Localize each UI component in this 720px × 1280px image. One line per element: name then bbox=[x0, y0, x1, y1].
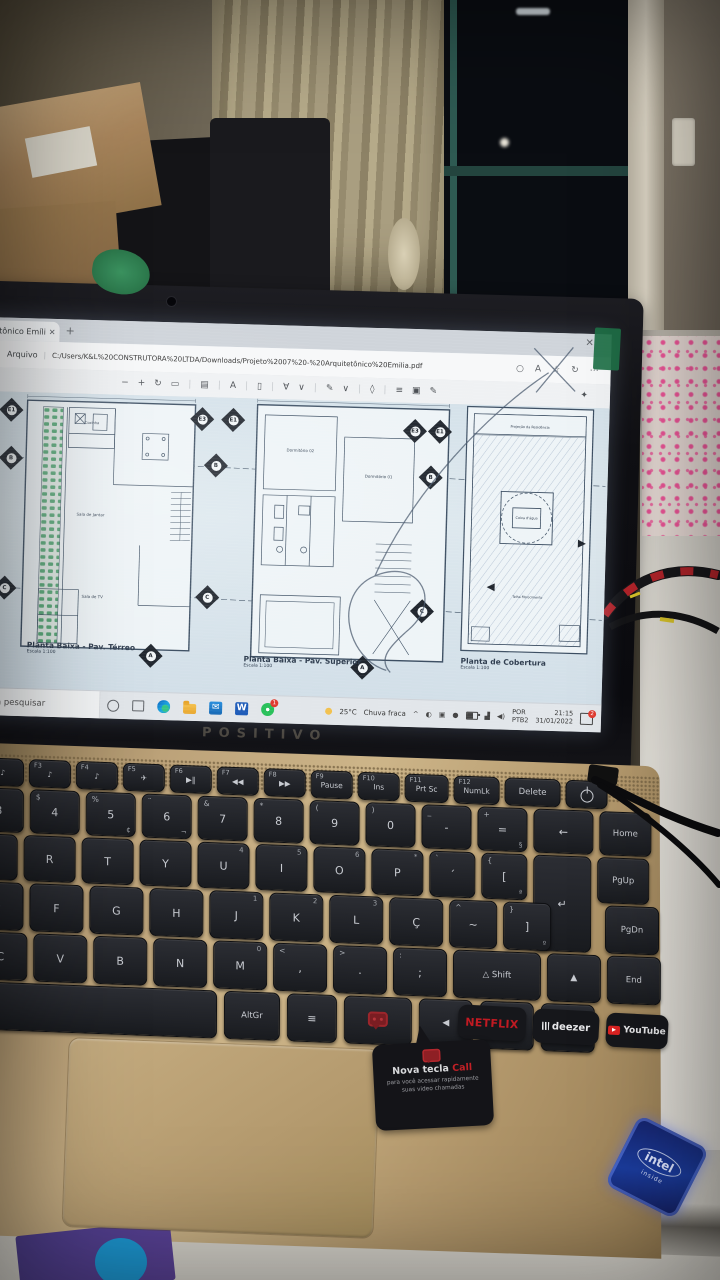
erase-icon[interactable]: ◊ bbox=[370, 385, 375, 395]
clock[interactable]: 21:1531/01/2022 bbox=[535, 710, 573, 726]
weather-temp[interactable]: 25°C bbox=[339, 708, 357, 716]
usb-cable bbox=[540, 755, 720, 895]
window-reflection bbox=[516, 8, 550, 15]
svg-text:Caixa d'água: Caixa d'água bbox=[515, 516, 537, 521]
whatsapp-icon[interactable]: 1 bbox=[261, 703, 274, 716]
taskbar-search-box[interactable]: ara pesquisar bbox=[0, 687, 101, 718]
task-view-icon[interactable] bbox=[132, 700, 144, 711]
door-frame-rail bbox=[450, 0, 457, 316]
zoom-icon[interactable]: ○ bbox=[516, 363, 524, 373]
draw-caret-icon[interactable]: ∨ bbox=[298, 383, 305, 393]
svg-text:Cozinha: Cozinha bbox=[85, 421, 99, 425]
zoom-in-icon[interactable]: + bbox=[138, 378, 146, 388]
window-close-button[interactable]: ✕ bbox=[585, 338, 594, 349]
search-text: ara pesquisar bbox=[0, 697, 45, 709]
pink-pattern-fabric bbox=[642, 336, 720, 536]
volume-icon[interactable]: ◀) bbox=[497, 712, 505, 720]
axis-marker-c: C bbox=[200, 590, 215, 605]
axis-marker-b: B bbox=[3, 450, 18, 465]
page-view-icon[interactable]: ▤ bbox=[200, 380, 209, 390]
divider: | bbox=[358, 384, 361, 394]
tab-title: tetônico Emíli bbox=[0, 325, 46, 337]
cortana-icon[interactable] bbox=[107, 699, 119, 711]
divider: | bbox=[245, 381, 248, 391]
action-center-icon[interactable]: 2 bbox=[580, 712, 593, 724]
network-icon[interactable]: ▟ bbox=[484, 712, 490, 720]
word-icon[interactable]: W bbox=[235, 702, 248, 715]
pin-toolbar-icon[interactable]: ✦ bbox=[580, 391, 588, 401]
svg-text:Telha Fibrocimento: Telha Fibrocimento bbox=[511, 595, 542, 600]
fit-page-icon[interactable]: ▭ bbox=[171, 379, 180, 389]
lanyard-strap bbox=[600, 535, 720, 635]
tab-close-icon[interactable]: ✕ bbox=[49, 327, 56, 336]
read-aloud-icon[interactable]: A bbox=[230, 381, 236, 391]
axis-marker-b: B bbox=[208, 458, 223, 473]
divider: | bbox=[271, 382, 274, 392]
save-as-icon[interactable]: ✎ bbox=[429, 386, 437, 396]
webcam bbox=[166, 296, 177, 307]
svg-text:Sala de Jantar: Sala de Jantar bbox=[76, 512, 104, 518]
folder-blue-circle bbox=[95, 1238, 147, 1280]
axis-marker-c: C bbox=[414, 604, 429, 619]
mail-icon[interactable]: ✉ bbox=[209, 701, 222, 714]
favorites-icon[interactable]: ☆ bbox=[552, 364, 560, 374]
new-tab-button[interactable]: + bbox=[65, 324, 75, 337]
zoom-out-icon[interactable]: − bbox=[121, 378, 129, 388]
pdf-page[interactable]: Sala de Jantar Sala de TV Cozinha Dormit… bbox=[0, 390, 610, 705]
door-frame-rail bbox=[444, 166, 632, 176]
divider: | bbox=[383, 385, 386, 395]
window-reflection bbox=[500, 138, 509, 147]
axis-marker-e1: E1 bbox=[226, 412, 241, 427]
rotate-icon[interactable]: ↻ bbox=[154, 379, 162, 389]
svg-text:Dormitório 01: Dormitório 01 bbox=[365, 474, 393, 480]
curtain-knot bbox=[388, 218, 420, 290]
plan-label-terreo: Planta Baixa - Pav. Térreo Escala 1:100 bbox=[27, 640, 136, 657]
sync-icon[interactable]: ↻ bbox=[571, 365, 579, 375]
door-frame bbox=[628, 0, 664, 330]
plan-label-cobertura: Planta de Cobertura Escala 1:100 bbox=[460, 656, 546, 672]
touchpad[interactable] bbox=[63, 1038, 380, 1238]
address-bar-icons: ○A☆↻⋯ bbox=[516, 363, 599, 375]
address-url[interactable]: C:/Users/K&L%20CONSTRUTORA%20LTDA/Downlo… bbox=[52, 351, 508, 372]
green-tape bbox=[593, 327, 621, 370]
weather-icon bbox=[325, 708, 332, 715]
hidden-icons-caret[interactable]: ^ bbox=[413, 710, 419, 718]
tray-app-icon[interactable]: ◐ bbox=[426, 710, 432, 718]
divider: | bbox=[188, 380, 191, 390]
draw-icon[interactable]: ∀ bbox=[283, 382, 289, 392]
divider: | bbox=[314, 383, 317, 393]
tray-app-icon[interactable]: ● bbox=[452, 711, 458, 719]
language-indicator[interactable]: PORPTB2 bbox=[512, 709, 529, 724]
video-call-icon bbox=[422, 1049, 441, 1063]
text-select-icon[interactable]: ▯ bbox=[257, 382, 262, 392]
laptop-screen: tetônico Emíli ✕ + ✕ Arquivo | C:/Users/… bbox=[0, 316, 612, 732]
weather-desc[interactable]: Chuva fraca bbox=[364, 708, 406, 717]
axis-marker-e3: E3 bbox=[407, 423, 422, 438]
svg-text:Dormitório 02: Dormitório 02 bbox=[286, 447, 314, 453]
netflix-key[interactable]: NETFLIX bbox=[457, 1004, 527, 1042]
glass-door-night bbox=[444, 0, 632, 316]
edge-icon[interactable] bbox=[157, 700, 170, 713]
dark-furniture bbox=[210, 118, 330, 308]
axis-marker-e1: E1 bbox=[432, 424, 447, 439]
axis-marker-c: C bbox=[0, 580, 12, 595]
call-key-sticker: Nova tecla Call para você acessar rapida… bbox=[372, 1039, 494, 1131]
light-switch bbox=[672, 118, 695, 166]
axis-marker-b: B bbox=[423, 470, 438, 485]
divider: | bbox=[218, 381, 221, 391]
deezer-equalizer-icon bbox=[542, 1022, 549, 1030]
svg-text:Sala de TV: Sala de TV bbox=[82, 594, 104, 600]
file-menu[interactable]: Arquivo bbox=[7, 350, 38, 360]
notification-badge: 1 bbox=[270, 699, 278, 707]
file-explorer-icon[interactable] bbox=[183, 703, 196, 713]
highlight-icon[interactable]: ✎ bbox=[326, 384, 334, 394]
battery-icon[interactable] bbox=[465, 711, 477, 719]
axis-marker-e3: E3 bbox=[195, 411, 210, 426]
axis-marker-e1: E1 bbox=[4, 402, 19, 417]
youtube-key[interactable]: YouTube bbox=[605, 1012, 669, 1049]
tray-app-icon[interactable]: ▣ bbox=[439, 710, 446, 718]
taskbar-apps: ✉ W 1 bbox=[101, 691, 275, 723]
photo-of-laptop: POSITIVO tetônico Emíli ✕ + ✕ Arquivo | … bbox=[0, 0, 720, 1280]
print-icon[interactable]: ≡ bbox=[395, 385, 403, 395]
highlight-caret-icon[interactable]: ∨ bbox=[342, 384, 349, 394]
deezer-key[interactable]: deezer bbox=[532, 1008, 600, 1045]
save-icon[interactable]: ▣ bbox=[412, 386, 421, 396]
read-aloud-icon[interactable]: A bbox=[535, 364, 541, 374]
axis-marker-a: A bbox=[143, 648, 158, 663]
browser-tab[interactable]: tetônico Emíli ✕ bbox=[0, 319, 60, 342]
youtube-play-icon bbox=[608, 1025, 620, 1035]
